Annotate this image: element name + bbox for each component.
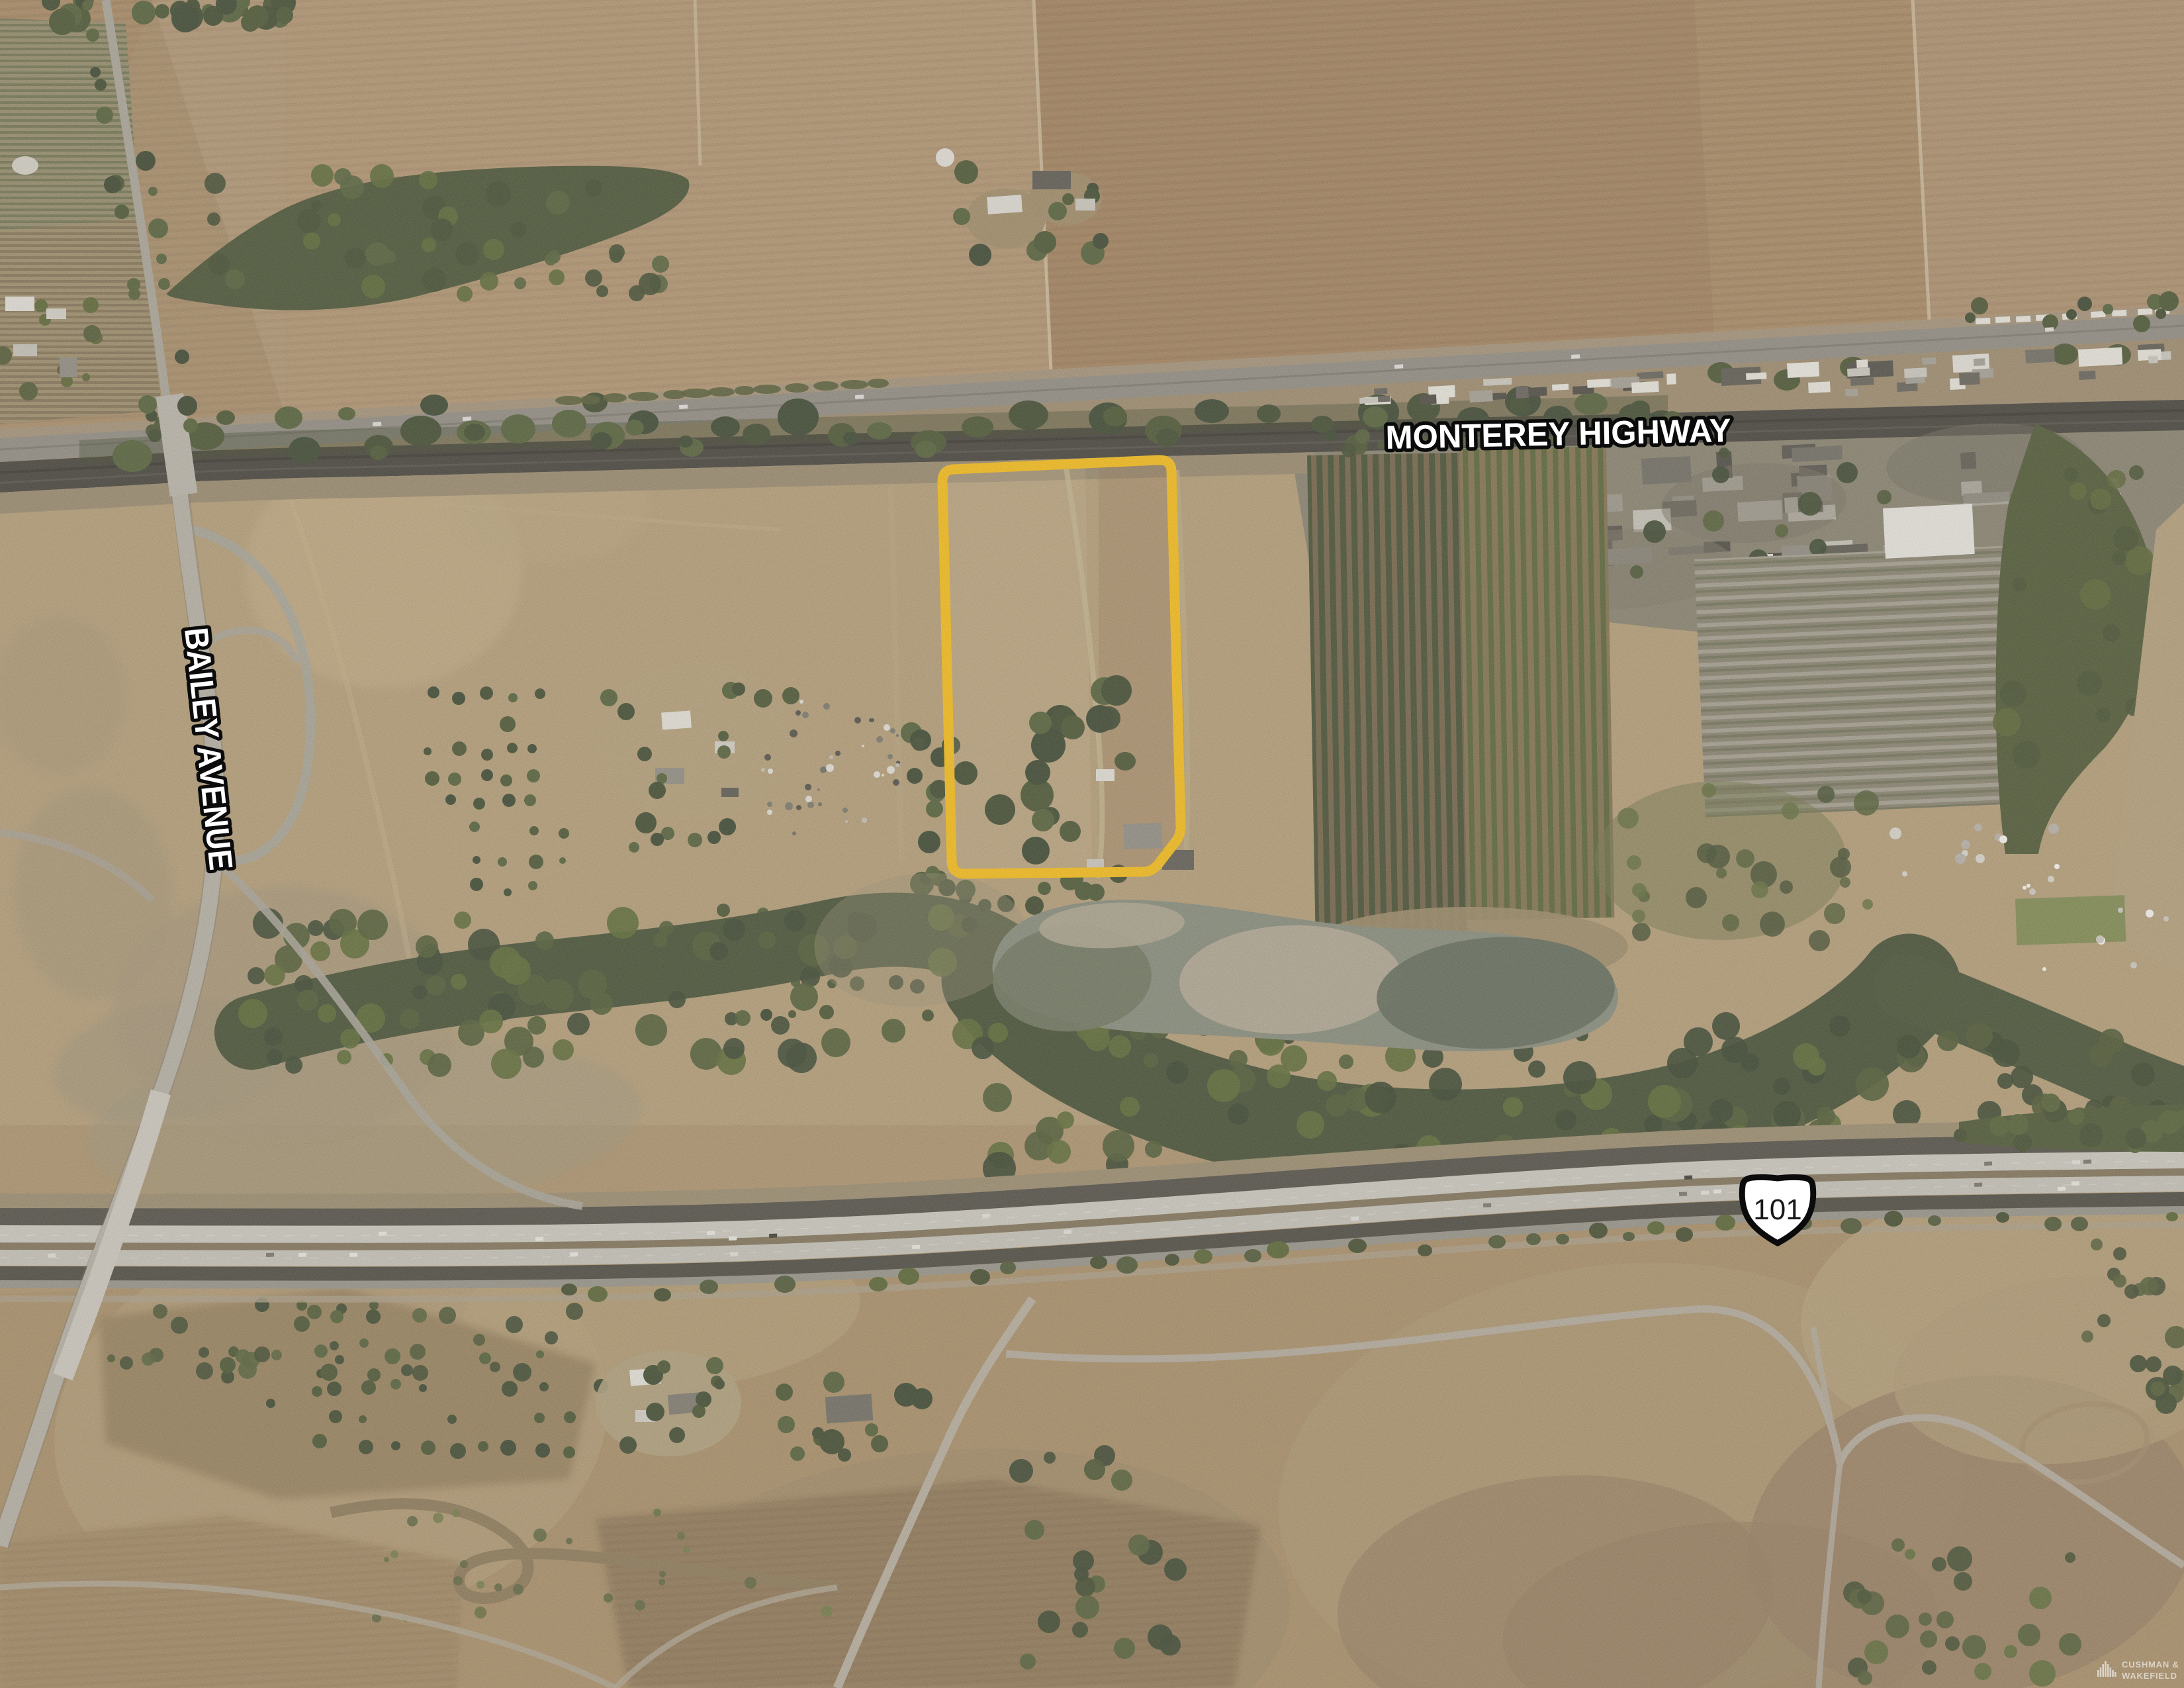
svg-text:WAKEFIELD: WAKEFIELD (2122, 1671, 2177, 1681)
svg-text:101: 101 (1753, 1194, 1801, 1226)
svg-text:CUSHMAN &: CUSHMAN & (2122, 1660, 2179, 1669)
svg-text:MONTEREY HIGHWAY: MONTEREY HIGHWAY (1385, 412, 1731, 456)
